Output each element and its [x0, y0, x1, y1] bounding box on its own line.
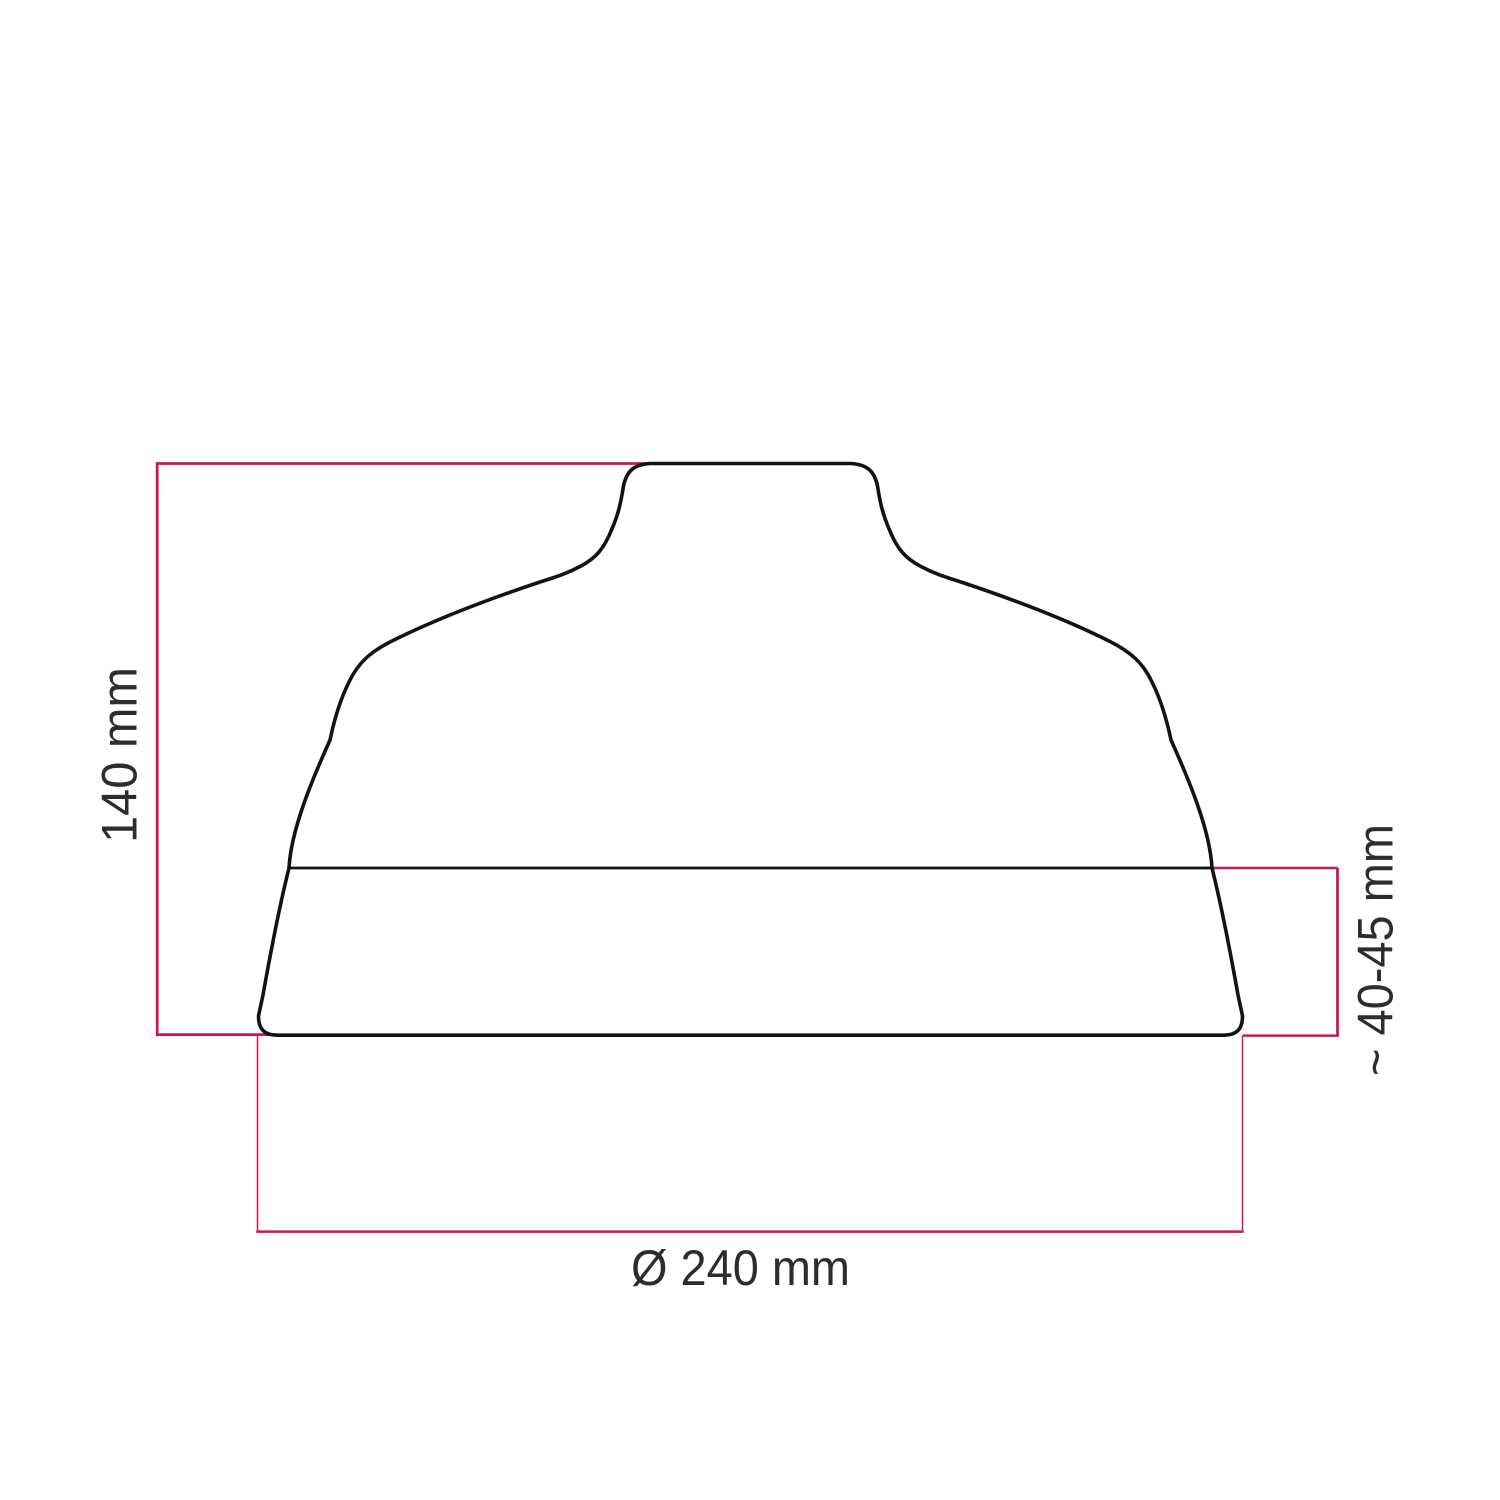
svg-text:~ 40-45 mm: ~ 40-45 mm: [1348, 824, 1404, 1076]
svg-text:140 mm: 140 mm: [92, 667, 148, 843]
svg-text:Ø 240 mm: Ø 240 mm: [631, 1240, 850, 1296]
